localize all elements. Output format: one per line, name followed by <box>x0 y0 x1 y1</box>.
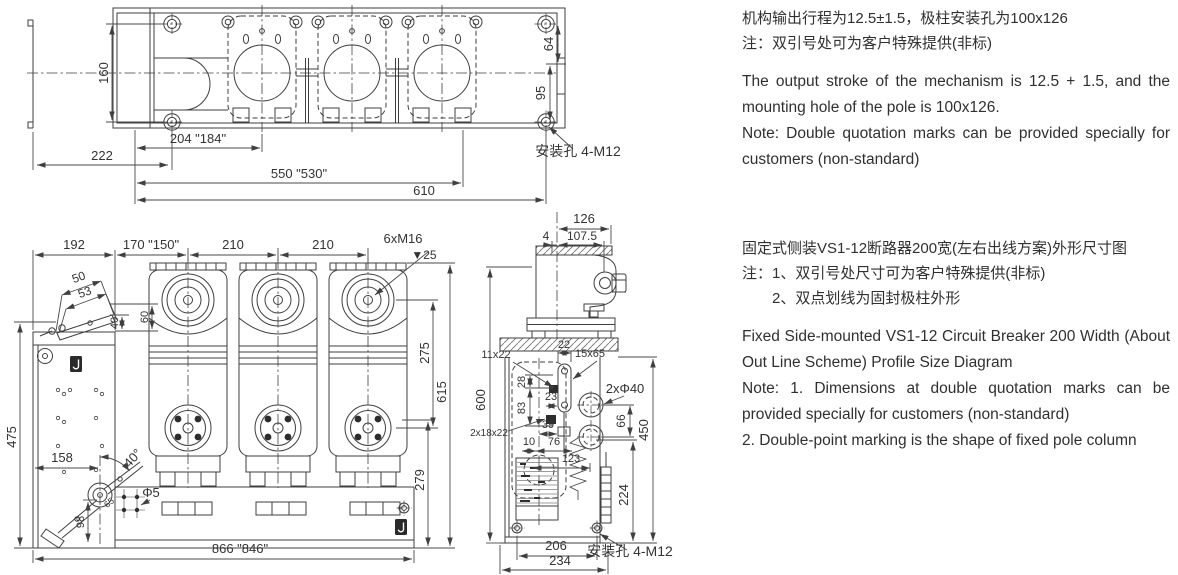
dim-64: 64 <box>541 37 556 51</box>
note-cn-line: 注：双引号处可为客户特殊提供(非标) <box>742 31 1170 56</box>
spring <box>570 438 586 500</box>
pole-column <box>149 258 407 488</box>
dim-123: 123 <box>562 453 580 465</box>
dim-66: 66 <box>614 414 628 428</box>
dim-10: 10 <box>523 436 535 448</box>
catalog-page: 160 222 204 "184" 550 "530" 610 64 95 安装… <box>0 0 1178 575</box>
side-view-drawing: 126 107.5 4 600 22 11x22 15x65 28 83 23 … <box>470 211 673 574</box>
dim-50: 50 <box>70 268 88 286</box>
slot-2x18x22-label: 2x18x22 <box>470 428 508 439</box>
mounting-bolt <box>510 521 525 536</box>
dim-450: 450 <box>636 419 651 441</box>
dim-83: 83 <box>516 402 528 414</box>
dim-65: 65 <box>102 496 116 510</box>
dim-76: 76 <box>548 436 560 448</box>
dim-234: 234 <box>549 553 571 568</box>
mechanism-cabinet <box>33 332 115 548</box>
slot-11x22-label: 11x22 <box>481 349 510 361</box>
mount-hole-label: 安装孔 4-M12 <box>535 143 621 159</box>
dim-98: 98 <box>75 516 87 528</box>
dim-615: 615 <box>434 381 449 403</box>
note-en-paragraph: Note: Double quotation marks can be prov… <box>742 121 1170 173</box>
angle-label: 40° <box>121 446 145 471</box>
dim-40: 40 <box>109 317 121 329</box>
pole-cutout <box>222 5 482 132</box>
dim-204: 204 "184" <box>170 131 227 146</box>
top-view-drawing: 160 222 204 "184" 550 "530" 610 64 95 安装… <box>27 5 621 204</box>
bolt-spec-label: 6xM16 <box>383 231 422 246</box>
depth-label: ▼25 <box>411 248 437 262</box>
dim-224: 224 <box>616 484 631 506</box>
note-en-paragraph: 2. Double-point marking is the shape of … <box>742 428 1170 454</box>
dim-28: 28 <box>516 376 528 388</box>
holes-2xphi40-label: 2xΦ40 <box>606 381 645 396</box>
dim-600: 600 <box>473 389 488 411</box>
base-frame <box>33 487 414 548</box>
dim-60: 60 <box>139 311 151 323</box>
front-view-drawing: 192 170 "150" 210 210 6xM16 ▼25 50 53 40… <box>4 231 455 563</box>
dim-610: 610 <box>413 183 435 198</box>
note-block-mid: 固定式侧装VS1-12断路器200宽(左右出线方案)外形尺寸图 注：1、双引号处… <box>742 236 1170 454</box>
nameplate <box>516 458 558 520</box>
dim-192: 192 <box>63 237 85 252</box>
interlock-latch <box>40 315 115 340</box>
panel-edge <box>28 20 33 128</box>
note-cn-title: 固定式侧装VS1-12断路器200宽(左右出线方案)外形尺寸图 <box>742 236 1170 261</box>
pole-side-profile <box>527 246 626 338</box>
dim-158: 158 <box>51 450 73 465</box>
dim-23: 23 <box>545 391 557 403</box>
technical-drawing: 160 222 204 "184" 550 "530" 610 64 95 安装… <box>0 0 742 575</box>
dim-279: 279 <box>412 469 427 491</box>
note-block-top: 机构输出行程为12.5±1.5，极柱安装孔为100x126 注：双引号处可为客户… <box>742 6 1170 173</box>
mounting-bolt <box>397 501 412 516</box>
hole-dia-label: Φ5 <box>142 485 160 500</box>
dim-160: 160 <box>96 62 111 84</box>
dim-222: 222 <box>91 148 113 163</box>
lifting-hook-icon <box>395 519 407 535</box>
slot-15x65-label: 15x65 <box>575 348 605 360</box>
note-en-paragraph: Note: 1. Dimensions at double quotation … <box>742 376 1170 428</box>
note-en-paragraph: Fixed Side-mounted VS1-12 Circuit Breake… <box>742 324 1170 376</box>
dim-4: 4 <box>543 229 550 243</box>
note-en-paragraph: The output stroke of the mechanism is 12… <box>742 69 1170 121</box>
dim-95: 95 <box>533 86 548 100</box>
dim-550: 550 "530" <box>271 166 328 181</box>
dim-170: 170 "150" <box>123 237 180 252</box>
dim-210-a: 210 <box>222 237 244 252</box>
dim-22: 22 <box>558 339 570 351</box>
dim-53: 53 <box>76 283 94 301</box>
note-cn-line: 注：1、双引号处尺寸可为客户特殊提供(非标) <box>742 261 1170 286</box>
dim-275: 275 <box>417 342 432 364</box>
dim-206: 206 <box>545 538 567 553</box>
note-cn-line: 2、双点划线为固封极柱外形 <box>742 286 1170 311</box>
mount-hole-label: 安装孔 4-M12 <box>587 543 673 559</box>
note-cn-line: 机构输出行程为12.5±1.5，极柱安装孔为100x126 <box>742 6 1170 31</box>
dim-126: 126 <box>573 211 595 226</box>
dim-866: 866 "846" <box>212 541 269 556</box>
dim-39: 39 <box>542 419 554 431</box>
lifting-hook-icon <box>70 356 82 372</box>
dim-475: 475 <box>4 426 19 448</box>
dim-210-b: 210 <box>312 237 334 252</box>
notes-panel: 机构输出行程为12.5±1.5，极柱安装孔为100x126 注：双引号处可为客户… <box>742 6 1170 454</box>
dim-107-5: 107.5 <box>567 229 597 243</box>
